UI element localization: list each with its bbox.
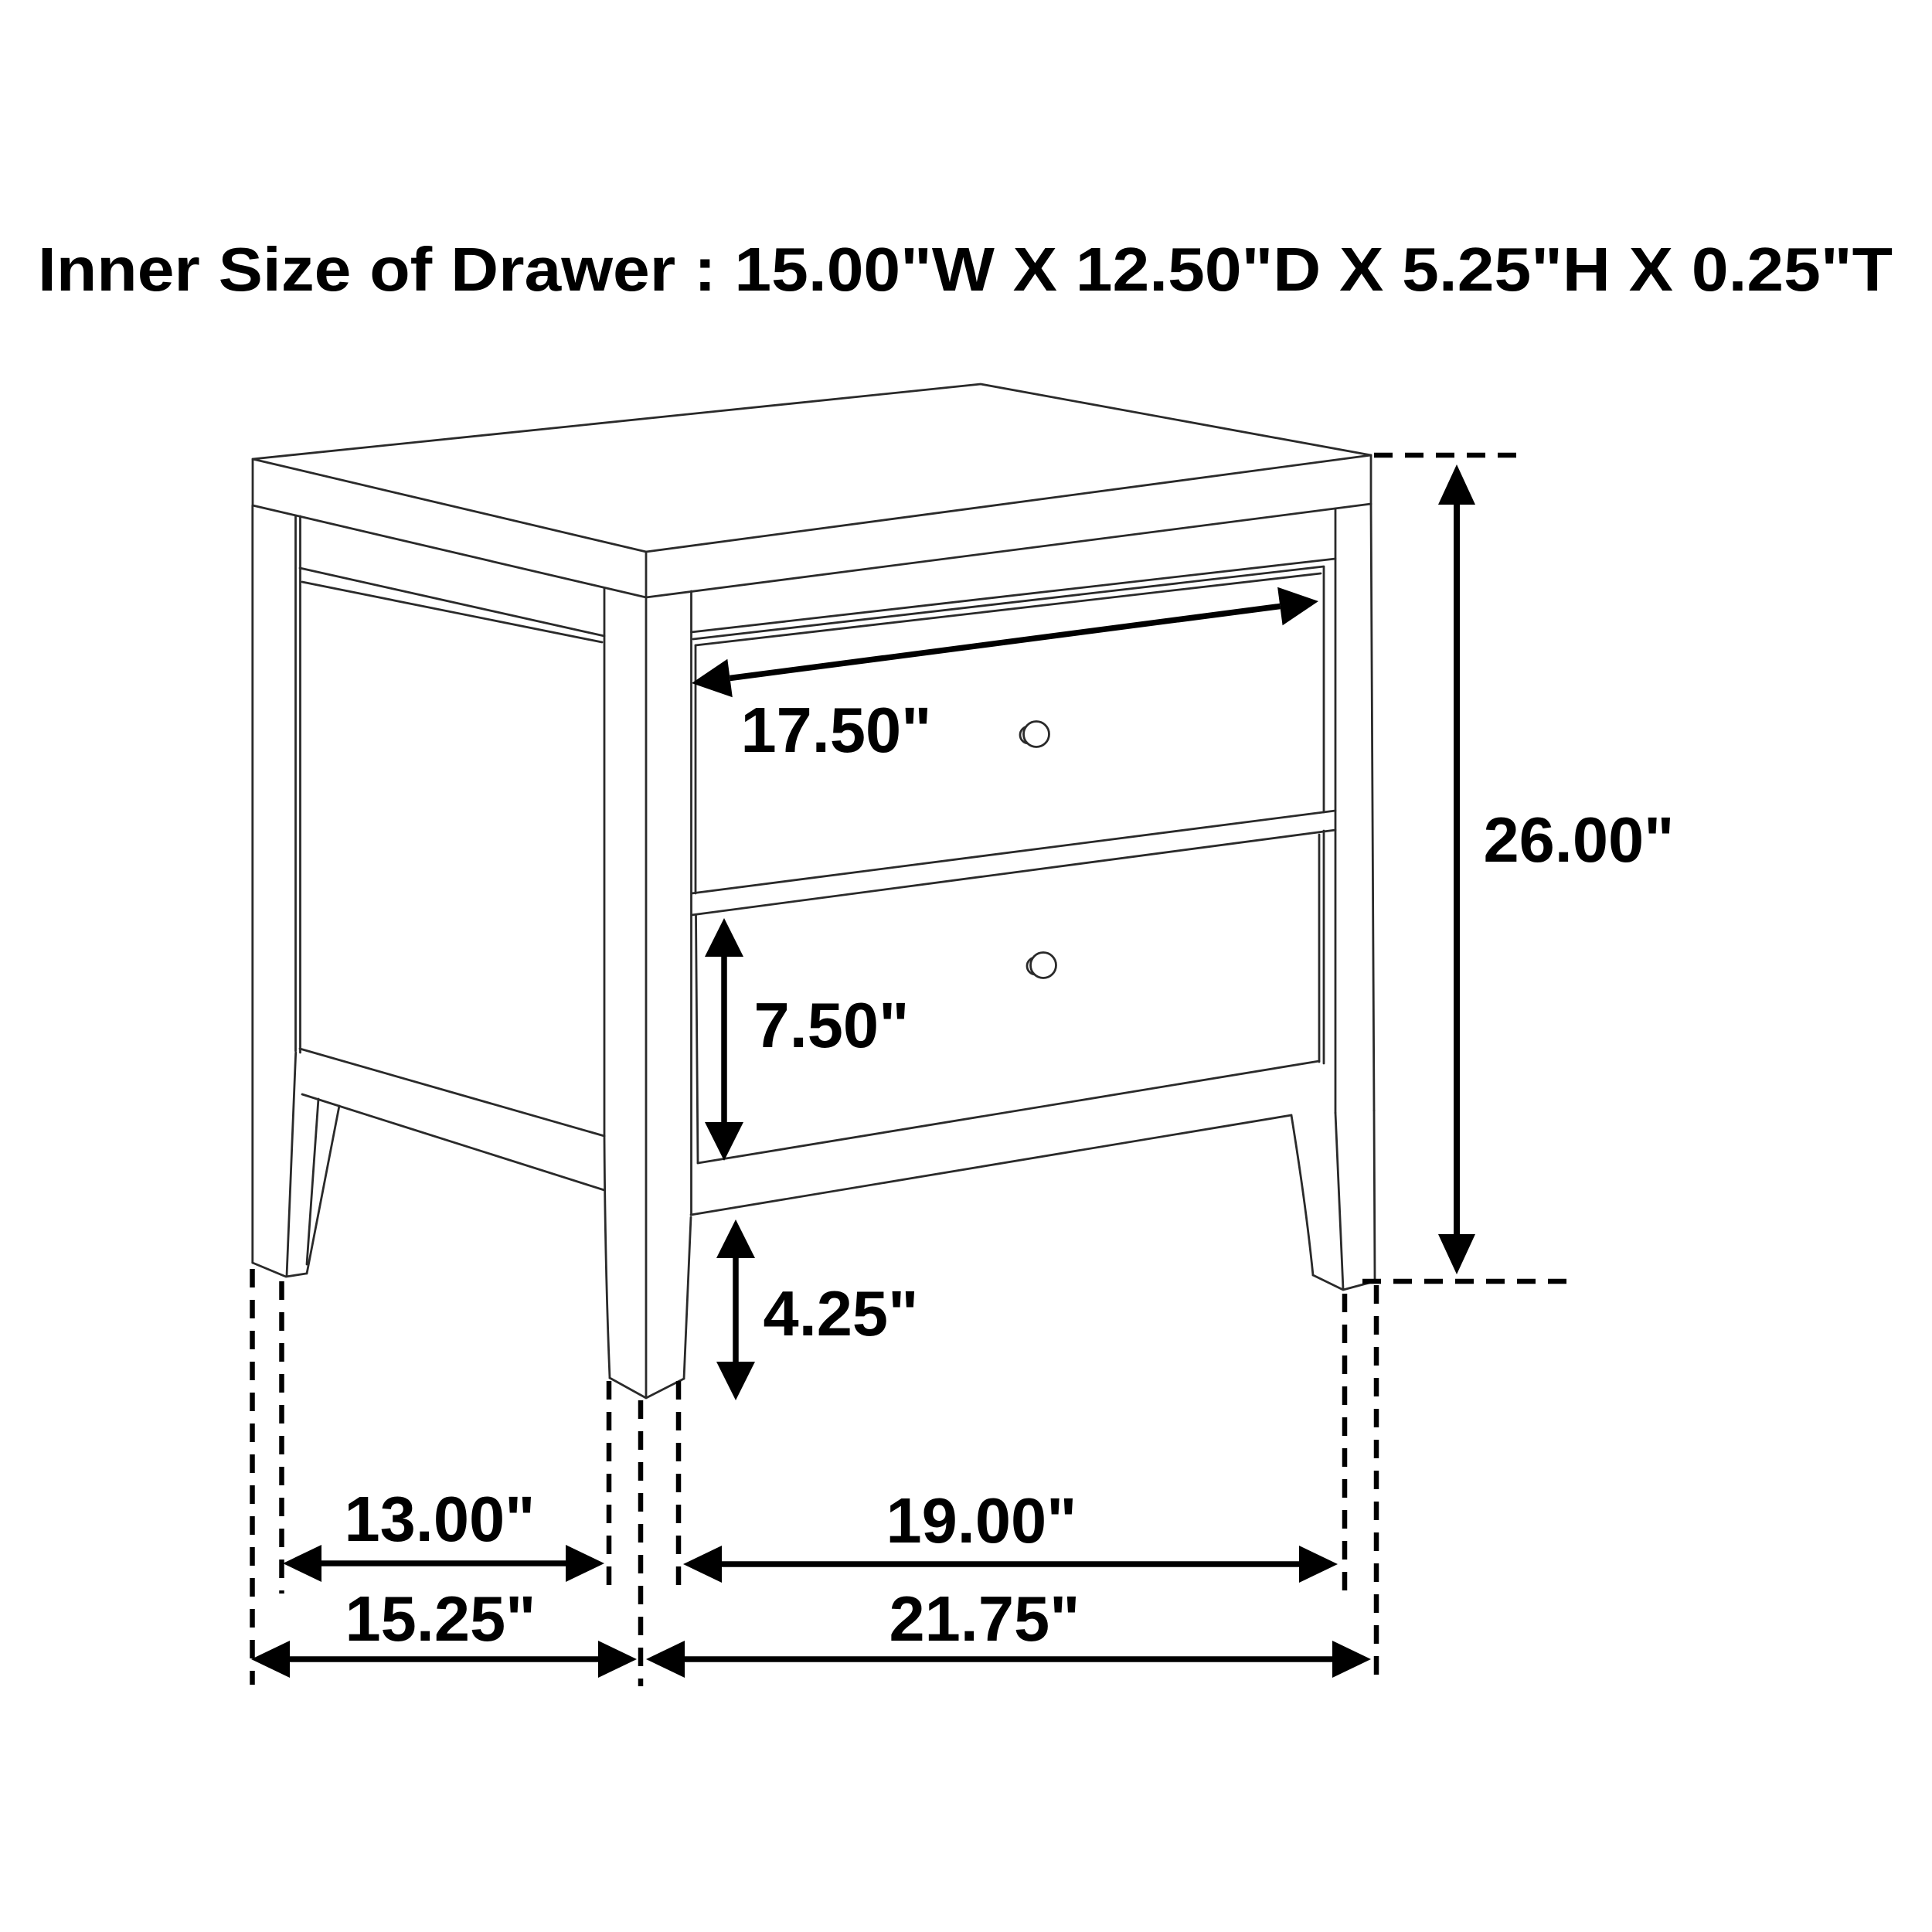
svg-text:13.00": 13.00": [344, 1483, 535, 1555]
svg-text:4.25": 4.25": [764, 1277, 919, 1349]
svg-text:Inner Size of Drawer : 15.00"W: Inner Size of Drawer : 15.00"W X 12.50"D…: [38, 235, 1893, 304]
svg-text:19.00": 19.00": [886, 1485, 1077, 1556]
svg-text:26.00": 26.00": [1483, 804, 1674, 876]
svg-text:7.50": 7.50": [754, 989, 910, 1061]
svg-text:21.75": 21.75": [889, 1583, 1080, 1655]
svg-text:17.50": 17.50": [740, 694, 931, 766]
svg-text:15.25": 15.25": [345, 1583, 536, 1655]
